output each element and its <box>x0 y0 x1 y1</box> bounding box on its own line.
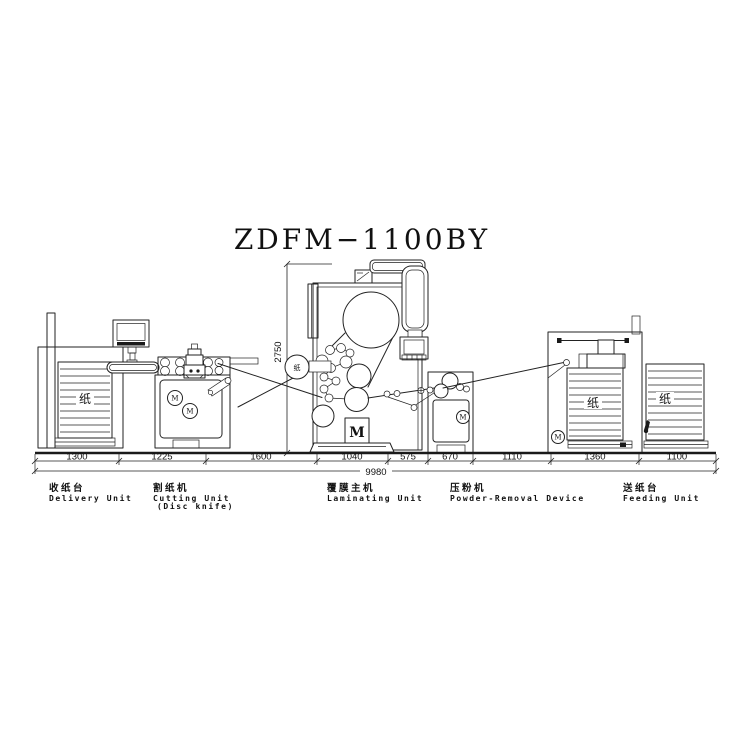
disc-knife-assembly <box>184 344 205 378</box>
diagram-canvas: ZDFM−1100BY 纸 <box>0 0 750 750</box>
feeding-label-zh: 送纸台 <box>622 482 659 494</box>
laminating-unit: 2750 <box>273 260 441 456</box>
motor-label: M <box>459 414 466 422</box>
label-delivery-unit: 收纸台 Delivery Unit <box>49 482 132 503</box>
staged-paper-stack: 纸 <box>644 364 708 448</box>
side-duct <box>402 266 428 337</box>
feeding-unit: 纸 M <box>548 316 642 453</box>
label-cutting-unit: 割纸机 Cutting Unit (Disc knife) <box>153 482 234 511</box>
idler-roller-bottom <box>312 405 334 427</box>
control-monitor <box>113 320 149 365</box>
powder-label-en: Powder-Removal Device <box>450 493 585 503</box>
trim-shelf <box>230 358 258 364</box>
label-feeding-unit: 送纸台 Feeding Unit <box>622 482 700 503</box>
laminating-label-zh: 覆膜主机 <box>326 482 375 494</box>
cutting-label-en2: (Disc knife) <box>157 501 234 511</box>
dim-1300: 1300 <box>66 452 87 463</box>
dim-1600: 1600 <box>250 452 271 463</box>
dim-1360: 1360 <box>584 452 605 463</box>
powder-rollers <box>418 373 470 398</box>
paper-label-feeder: 纸 <box>587 396 599 410</box>
cutting-label-zh: 割纸机 <box>153 482 189 494</box>
dim-670: 670 <box>442 452 458 463</box>
feeding-label-en: Feeding Unit <box>623 493 700 503</box>
dim-575: 575 <box>400 452 416 463</box>
paper-label-staged: 纸 <box>659 392 671 406</box>
laminator-control-panel <box>400 337 428 360</box>
label-laminating-unit: 覆膜主机 Laminating Unit <box>326 482 423 503</box>
delivery-paper-stack: 纸 <box>58 362 112 438</box>
delivery-mast <box>47 313 55 448</box>
delivery-label-en: Delivery Unit <box>49 493 132 503</box>
feeder-pallet <box>568 441 632 448</box>
dim-1110: 1110 <box>502 452 522 463</box>
dim-1225: 1225 <box>151 452 172 463</box>
powder-removal-device: M <box>418 372 473 453</box>
height-dim-label: 2750 <box>273 341 284 362</box>
dim-1100: 1100 <box>667 452 687 463</box>
cutting-motor-1: M <box>168 391 183 406</box>
delivery-conveyor <box>107 362 159 373</box>
unit-labels: 收纸台 Delivery Unit 割纸机 Cutting Unit (Disc… <box>49 482 700 511</box>
diagram-title: ZDFM−1100BY <box>234 223 490 256</box>
nip-roller-lower <box>345 388 369 412</box>
motor-label: M <box>171 395 178 403</box>
dim-total-9980: 9980 <box>365 467 386 478</box>
staged-pallet <box>644 441 708 448</box>
paper-label-delivery: 纸 <box>79 392 91 406</box>
feeder-crossbar <box>557 338 629 343</box>
feeder-paper-stack: 纸 <box>567 368 623 440</box>
powder-label-zh: 压粉机 <box>450 482 486 494</box>
nip-roller-upper <box>347 364 371 388</box>
feeder-motor: M <box>552 431 565 444</box>
motor-label: M <box>349 425 365 441</box>
cutting-base-notch <box>173 440 199 448</box>
powder-motor: M <box>457 411 470 424</box>
dim-1040: 1040 <box>341 452 362 463</box>
film-roll-circle <box>343 292 399 348</box>
laminating-label-en: Laminating Unit <box>327 493 423 503</box>
delivery-label-zh: 收纸台 <box>49 482 85 494</box>
staged-stack: 纸 <box>646 364 704 440</box>
motor-label: M <box>554 434 561 442</box>
label-powder-removal: 压粉机 Powder-Removal Device <box>450 482 585 503</box>
laminator-motor-box: M <box>345 418 369 445</box>
feed-web-diagonal <box>443 360 570 389</box>
motor-label: M <box>186 408 193 416</box>
paper-label-rewind: 纸 <box>294 363 301 372</box>
cutting-unit: M M <box>155 344 258 448</box>
delivery-unit: 纸 <box>38 313 123 448</box>
feeder-post <box>632 316 640 334</box>
dimension-lines: 1300 1225 1600 1040 575 670 1110 1360 11… <box>32 452 719 479</box>
laminator-top-bracket <box>355 270 372 283</box>
machine-line-diagram: ZDFM−1100BY 纸 <box>0 0 750 750</box>
cutting-motor-2: M <box>183 404 198 419</box>
